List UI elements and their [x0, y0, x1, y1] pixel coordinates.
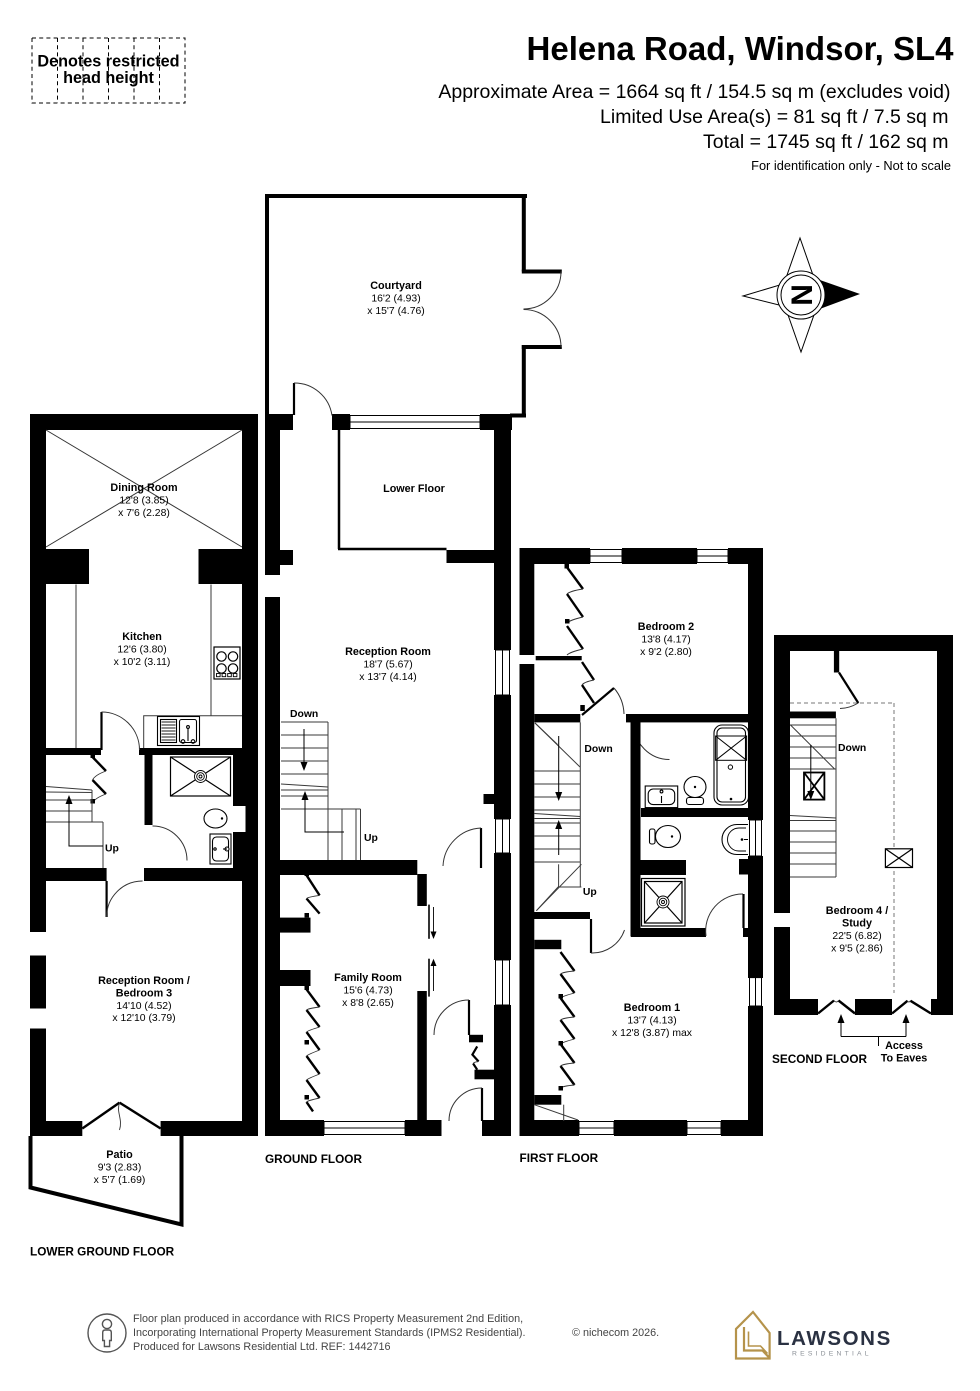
svg-text:Lower Floor: Lower Floor — [383, 483, 446, 495]
svg-text:LAWSONS: LAWSONS — [777, 1327, 892, 1350]
svg-text:13'8 (4.17): 13'8 (4.17) — [641, 634, 690, 645]
svg-text:Helena Road, Windsor, SL4: Helena Road, Windsor, SL4 — [527, 30, 955, 67]
svg-text:Bedroom 1: Bedroom 1 — [624, 1002, 680, 1014]
svg-text:Up: Up — [105, 844, 119, 855]
svg-text:Incorporating International Pr: Incorporating International Property Mea… — [133, 1327, 525, 1339]
svg-text:LOWER GROUND FLOOR: LOWER GROUND FLOOR — [30, 1245, 175, 1259]
svg-text:x 10'2 (3.11): x 10'2 (3.11) — [114, 657, 171, 668]
svg-text:Kitchen: Kitchen — [122, 631, 162, 643]
svg-text:Limited Use Area(s) = 81 sq ft: Limited Use Area(s) = 81 sq ft / 7.5 sq … — [600, 106, 948, 128]
svg-text:Bedroom 2: Bedroom 2 — [638, 621, 694, 633]
svg-text:12'6 (3.80): 12'6 (3.80) — [117, 645, 166, 656]
svg-text:GROUND FLOOR: GROUND FLOOR — [265, 1152, 362, 1166]
svg-text:Total = 1745 sq ft / 162 sq m: Total = 1745 sq ft / 162 sq m — [703, 131, 949, 153]
svg-text:x 9'5 (2.86): x 9'5 (2.86) — [831, 944, 883, 955]
svg-text:For identification only - Not: For identification only - Not to scale — [751, 158, 951, 173]
svg-text:Access: Access — [885, 1040, 923, 1052]
svg-text:x 5'7 (1.69): x 5'7 (1.69) — [94, 1175, 146, 1186]
svg-text:Dining Room: Dining Room — [110, 482, 177, 494]
svg-text:12'8 (3.85): 12'8 (3.85) — [119, 495, 168, 506]
svg-text:Produced for Lawsons Residenti: Produced for Lawsons Residential Ltd. RE… — [133, 1341, 390, 1353]
svg-text:15'6 (4.73): 15'6 (4.73) — [343, 985, 392, 996]
svg-text:Down: Down — [584, 744, 612, 755]
svg-text:13'7 (4.13): 13'7 (4.13) — [627, 1015, 676, 1026]
svg-text:Floor plan produced in accorda: Floor plan produced in accordance with R… — [133, 1313, 523, 1325]
svg-text:x 9'2 (2.80): x 9'2 (2.80) — [640, 647, 692, 658]
svg-text:22'5 (6.82): 22'5 (6.82) — [832, 931, 881, 942]
svg-text:FIRST FLOOR: FIRST FLOOR — [520, 1151, 599, 1165]
svg-text:Courtyard: Courtyard — [370, 280, 422, 292]
svg-text:© nichecom 2026.: © nichecom 2026. — [572, 1327, 659, 1339]
svg-text:Approximate Area = 1664 sq ft: Approximate Area = 1664 sq ft / 154.5 sq… — [438, 81, 950, 103]
svg-text:Up: Up — [583, 887, 597, 898]
svg-text:14'10 (4.52): 14'10 (4.52) — [116, 1001, 171, 1012]
svg-text:9'3 (2.83): 9'3 (2.83) — [98, 1162, 142, 1173]
svg-text:To Eaves: To Eaves — [881, 1052, 928, 1064]
svg-text:head height: head height — [63, 69, 154, 87]
svg-text:18'7 (5.67): 18'7 (5.67) — [363, 659, 412, 670]
svg-text:x 13'7 (4.14): x 13'7 (4.14) — [359, 672, 416, 683]
svg-text:RESIDENTIAL: RESIDENTIAL — [792, 1351, 872, 1358]
svg-text:Bedroom 3: Bedroom 3 — [116, 987, 172, 999]
svg-text:16'2 (4.93): 16'2 (4.93) — [371, 293, 420, 304]
svg-text:Reception Room: Reception Room — [345, 646, 431, 658]
svg-text:Family Room: Family Room — [334, 972, 402, 984]
svg-text:Denotes restricted: Denotes restricted — [37, 53, 179, 71]
svg-text:Bedroom 4 /: Bedroom 4 / — [826, 905, 888, 917]
svg-text:x 7'6 (2.28): x 7'6 (2.28) — [118, 508, 170, 519]
svg-text:Down: Down — [290, 709, 318, 720]
svg-text:N: N — [785, 284, 818, 306]
svg-text:SECOND FLOOR: SECOND FLOOR — [772, 1052, 868, 1066]
svg-text:x 15'7 (4.76): x 15'7 (4.76) — [367, 306, 424, 317]
svg-text:Study: Study — [842, 918, 872, 930]
svg-text:x 12'8 (3.87) max: x 12'8 (3.87) max — [612, 1028, 693, 1039]
svg-text:Reception Room /: Reception Room / — [98, 975, 190, 987]
svg-text:x 12'10 (3.79): x 12'10 (3.79) — [112, 1013, 175, 1024]
svg-text:Down: Down — [838, 743, 866, 754]
svg-text:Up: Up — [364, 833, 378, 844]
svg-text:Patio: Patio — [106, 1149, 133, 1161]
svg-text:x 8'8 (2.65): x 8'8 (2.65) — [342, 998, 394, 1009]
